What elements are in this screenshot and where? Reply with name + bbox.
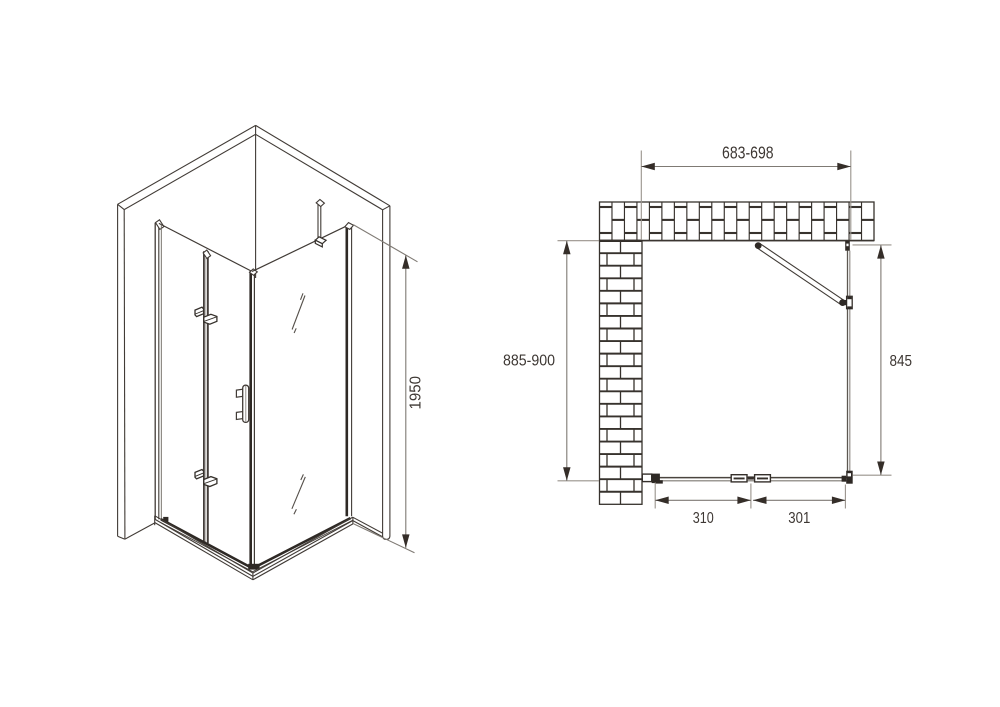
svg-text:301: 301	[788, 510, 810, 527]
svg-text:1950: 1950	[407, 376, 424, 410]
svg-text:845: 845	[890, 353, 913, 370]
svg-text:310: 310	[693, 510, 714, 527]
svg-text:885-900: 885-900	[503, 353, 555, 370]
svg-text:683-698: 683-698	[722, 143, 774, 163]
